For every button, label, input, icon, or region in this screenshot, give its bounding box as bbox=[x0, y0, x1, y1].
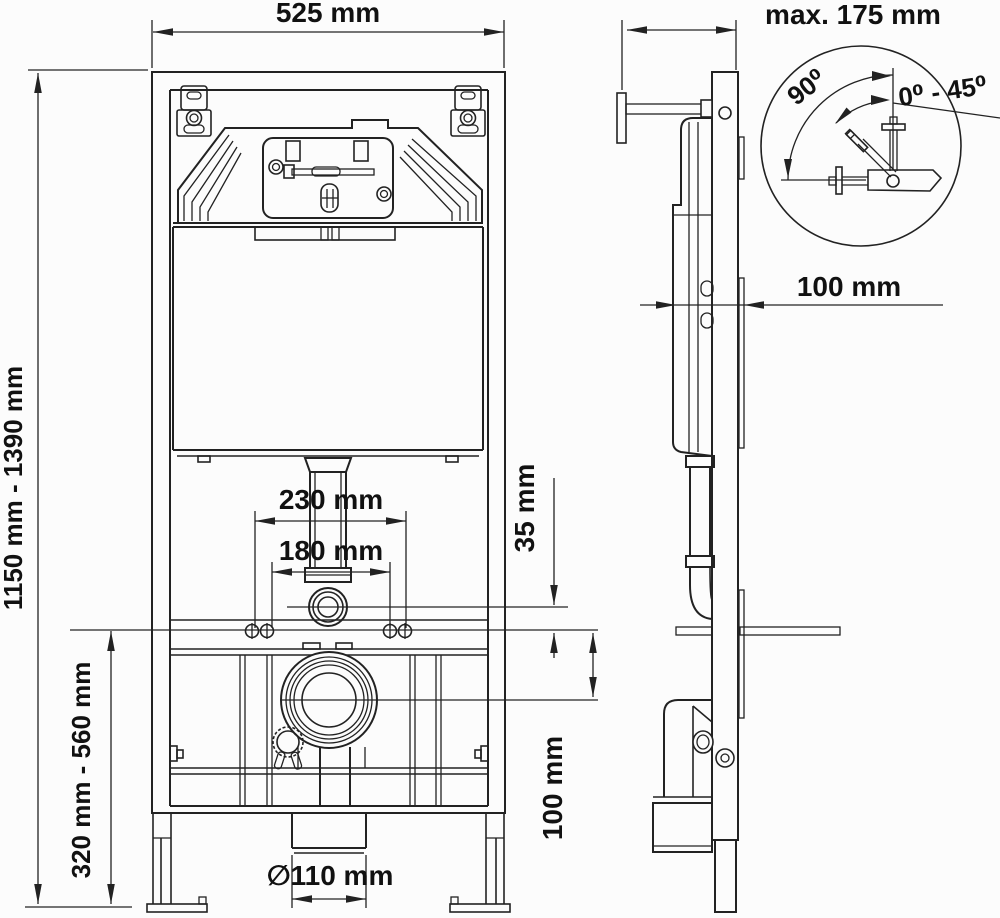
dim-front-height: 1150 mm - 1390 mm bbox=[0, 366, 28, 610]
side-rail bbox=[712, 72, 744, 912]
foot-left bbox=[147, 813, 207, 912]
flush-elbow-profile bbox=[686, 456, 714, 619]
side-lug-left bbox=[170, 746, 183, 761]
mounting-bracket-left bbox=[177, 86, 211, 136]
side-dimensions: max. 175 mm 100 mm bbox=[622, 0, 943, 305]
wall-anchor-rod-bottom bbox=[676, 627, 840, 635]
installation-frame-drawing: 525 mm 1150 mm - 1390 mm 320 mm - 560 mm… bbox=[0, 0, 1000, 918]
dim-spacing-inner: 180 mm bbox=[279, 535, 383, 566]
detail-circle bbox=[761, 46, 961, 246]
dim-depth-max: max. 175 mm bbox=[765, 0, 941, 30]
technical-drawing-page: 525 mm 1150 mm - 1390 mm 320 mm - 560 mm… bbox=[0, 0, 1000, 918]
cistern bbox=[173, 120, 483, 462]
dim-frame-depth: 100 mm bbox=[797, 271, 901, 302]
front-dimensions: 525 mm 1150 mm - 1390 mm 320 mm - 560 mm… bbox=[0, 0, 598, 908]
anchor-angle-detail: 90⁰ 0⁰ - 45⁰ bbox=[761, 46, 1000, 246]
side-view bbox=[617, 72, 840, 912]
dim-drain-diameter: ∅110 mm bbox=[267, 860, 394, 891]
dim-offset-small: 35 mm bbox=[509, 464, 540, 553]
drain-outlet-stub bbox=[292, 813, 366, 853]
side-lug-right bbox=[475, 746, 488, 761]
foot-right bbox=[450, 813, 510, 912]
cistern-profile bbox=[673, 118, 713, 456]
mounting-bracket-right bbox=[451, 86, 485, 136]
dim-offset-drain: 100 mm bbox=[537, 736, 568, 840]
dim-mount-height: 320 mm - 560 mm bbox=[66, 662, 96, 879]
drain-bend bbox=[273, 652, 377, 770]
label-angle-range: 0⁰ - 45⁰ bbox=[896, 70, 989, 112]
anchor-bracket bbox=[829, 117, 941, 194]
access-panel bbox=[263, 138, 393, 218]
label-angle-90: 90⁰ bbox=[781, 63, 831, 111]
dim-spacing-outer: 230 mm bbox=[279, 484, 383, 515]
dim-front-width: 525 mm bbox=[276, 0, 380, 28]
